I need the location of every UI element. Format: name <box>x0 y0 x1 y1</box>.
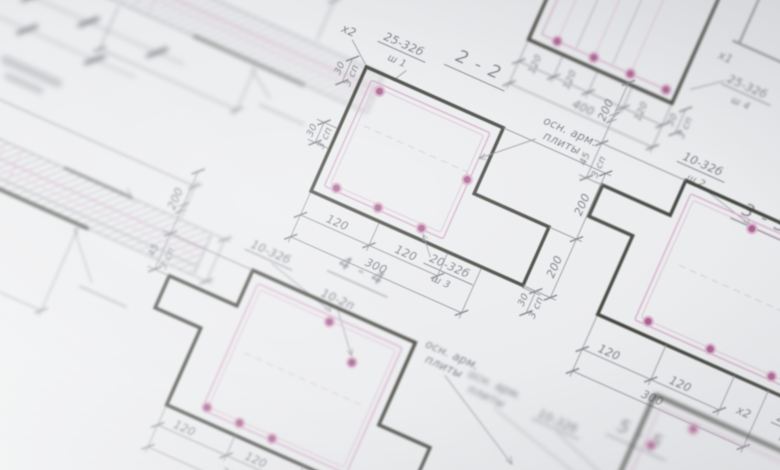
dim-label: 120 <box>171 417 198 439</box>
dim-label: 120 <box>561 68 579 91</box>
rebar-count: ш 4 <box>729 95 751 113</box>
rebar-mark-label: 10-32б <box>519 405 636 470</box>
svg-text:10-32б: 10-32б <box>249 237 293 267</box>
dim-label: 300 <box>218 464 245 470</box>
svg-text:х1: х1 <box>715 47 735 66</box>
dim-label: 3 сп <box>158 246 177 271</box>
dim-label: 3 сп <box>589 154 608 179</box>
dim-label: 120 <box>243 449 270 470</box>
section-title: 4 - 4 <box>327 249 397 298</box>
svg-text:4 - 4: 4 - 4 <box>335 252 388 291</box>
dim-label: 200 <box>594 97 616 124</box>
dim-label: 45 <box>578 151 593 168</box>
dim-label: 120 <box>526 53 544 76</box>
svg-text:ш 1: ш 1 <box>386 52 408 70</box>
svg-text:5 - 5: 5 - 5 <box>614 415 667 454</box>
rebar-mark: 10-32б <box>536 406 580 436</box>
blueprint-photo: 2 - 2 25-32б ш 1 х2 <box>0 0 780 470</box>
x1-label: х1 <box>715 47 735 66</box>
section-title: 5 - 5 <box>606 412 676 461</box>
drawing-sheet: 2 - 2 25-32б ш 1 х2 <box>0 0 780 470</box>
svg-text:х2: х2 <box>338 21 358 40</box>
